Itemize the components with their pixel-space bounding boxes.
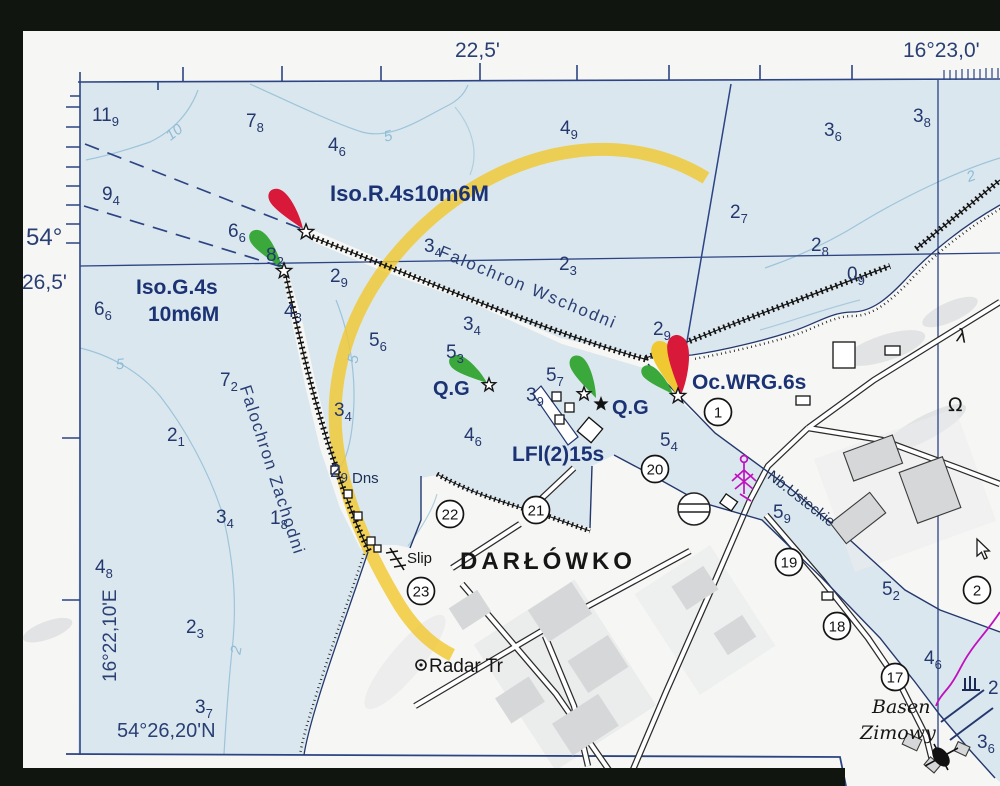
- latitude-degrees-label: 54°: [26, 226, 62, 250]
- light-label-lfl: LFl(2)15s: [512, 444, 604, 465]
- berth-number: 23: [408, 578, 435, 605]
- light-label-iso-g-2: 10m6M: [148, 304, 219, 325]
- light-label-iso-g-1: Iso.G.4s: [136, 277, 218, 298]
- svg-text:17: 17: [887, 670, 904, 687]
- berth-number: 21: [523, 497, 550, 524]
- corner-longitude-label: 16°22,10'E: [101, 589, 120, 682]
- corner-latitude-label: 54°26,20'N: [117, 721, 216, 741]
- light-label-iso-r: Iso.R.4s10m6M: [330, 183, 489, 205]
- winter-basin-label-1: Basen: [872, 698, 931, 717]
- town-name-label: DARŁÓWKO: [460, 550, 636, 574]
- light-label-qg-west: Q.G: [433, 379, 470, 399]
- top-longitude-label: 16°23,0': [903, 40, 980, 61]
- dolphins-label: Dns: [352, 471, 379, 486]
- winter-basin-label-2: Zimowy: [860, 724, 936, 743]
- latitude-minutes-label: 26,5': [22, 272, 67, 293]
- svg-text:18: 18: [829, 619, 846, 636]
- svg-text:20: 20: [647, 462, 664, 479]
- berth-number: 22: [437, 501, 464, 528]
- light-label-oc-wrg: Oc.WRG.6s: [692, 372, 806, 393]
- slip-label: Slip: [407, 551, 432, 566]
- top-minutes-label: 22,5': [455, 40, 500, 61]
- berth-number: 17: [882, 664, 909, 691]
- svg-text:21: 21: [528, 503, 545, 520]
- svg-text:19: 19: [781, 555, 798, 572]
- svg-text:2: 2: [973, 583, 981, 600]
- svg-text:22: 22: [442, 507, 459, 524]
- svg-text:23: 23: [413, 584, 430, 601]
- berth-number: 2: [964, 577, 991, 604]
- berth-number: 18: [824, 613, 851, 640]
- radar-tower-label: Radar Tr: [429, 657, 503, 676]
- depth-sounding: 2: [988, 678, 999, 699]
- svg-text:1: 1: [714, 405, 722, 422]
- light-label-qg-east: Q.G: [612, 398, 649, 418]
- berth-number: 19: [776, 549, 803, 576]
- berth-number: 20: [642, 456, 669, 483]
- berth-number: 1: [705, 399, 732, 426]
- omega-symbol: Ω: [948, 396, 963, 415]
- scanned-nautical-chart: 1197846944936382728096682662934232943563…: [0, 0, 1000, 786]
